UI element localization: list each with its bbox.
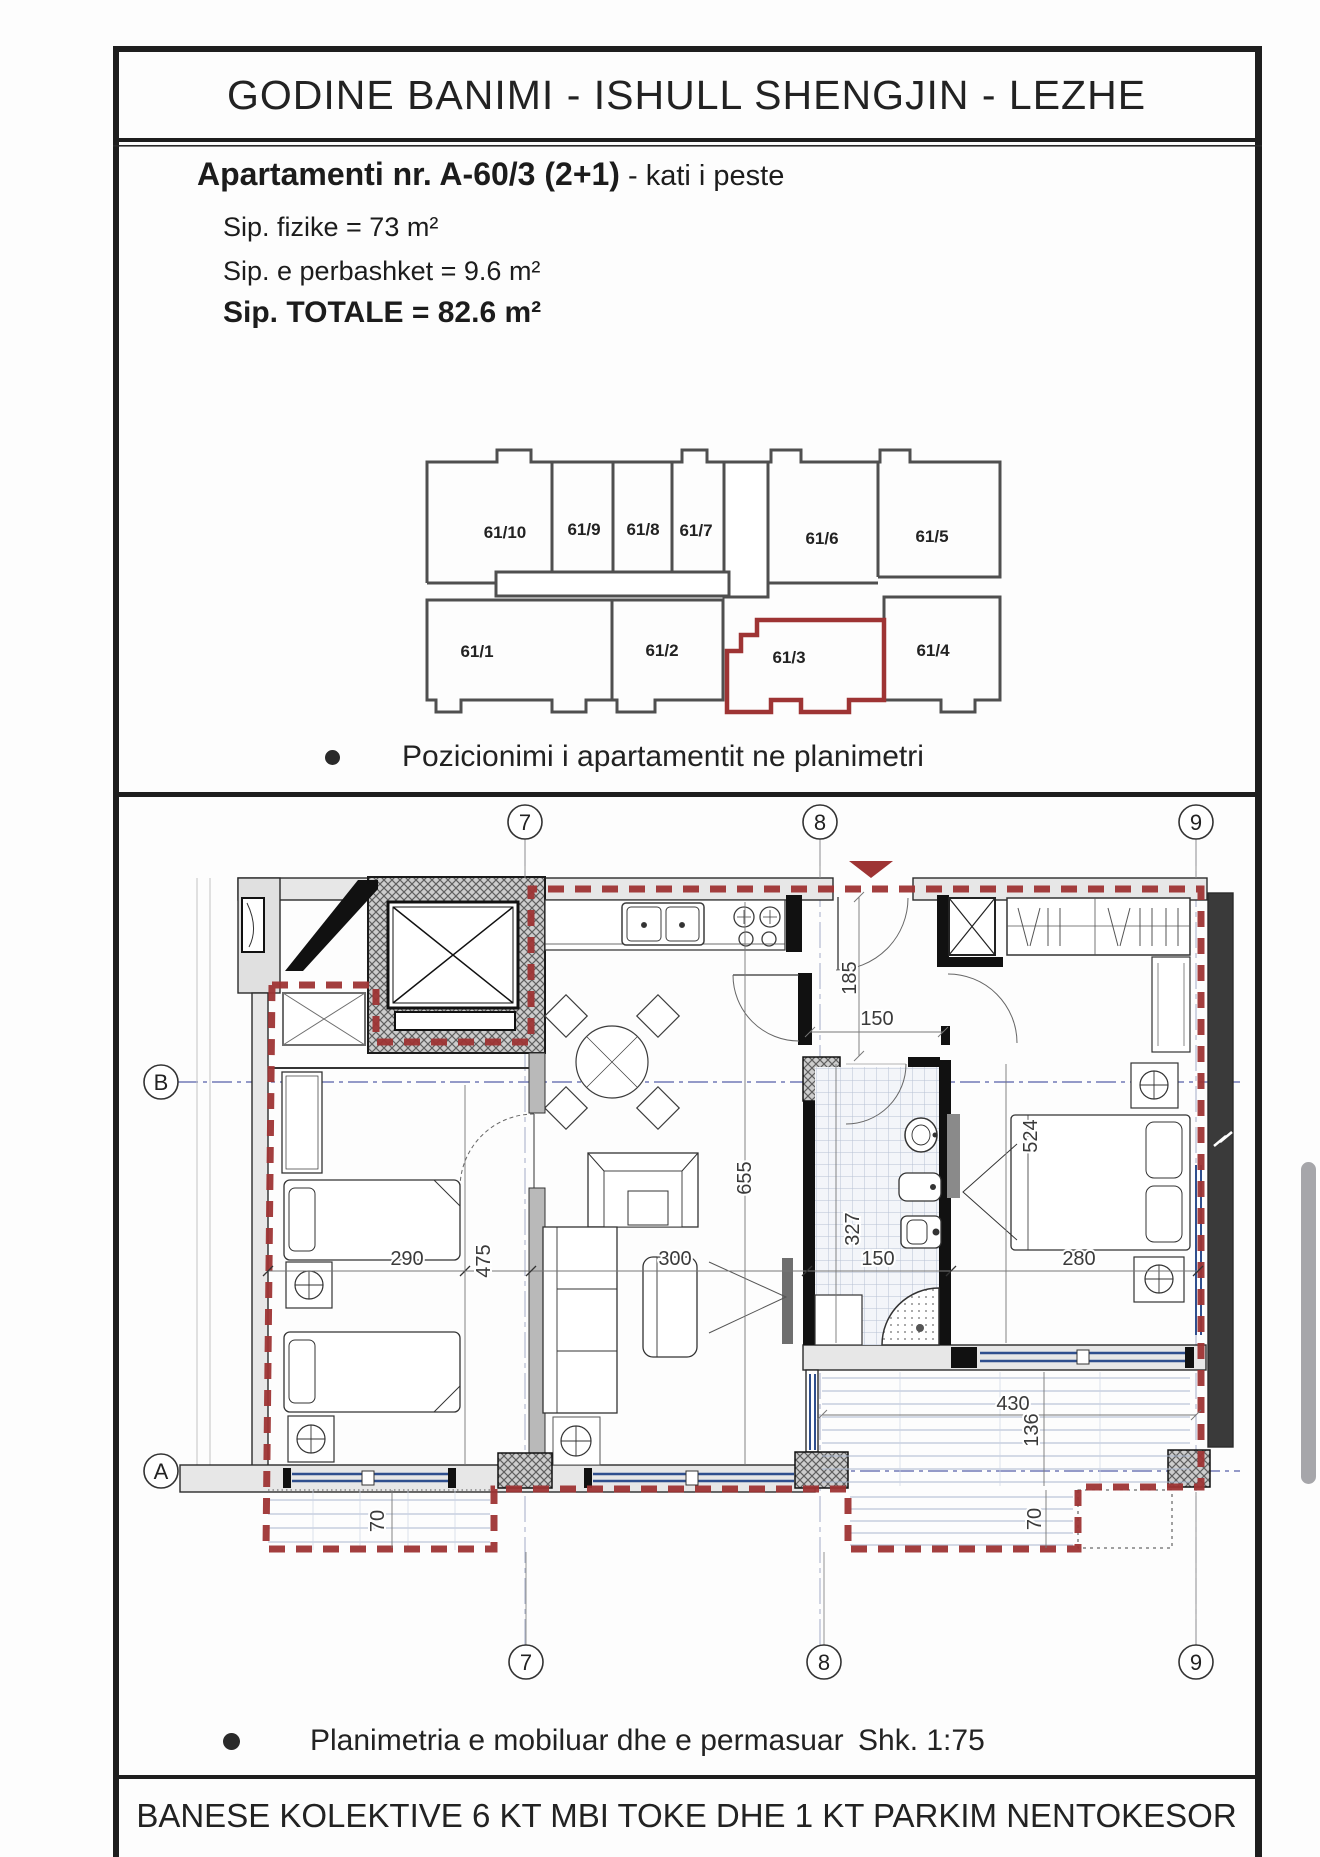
drawing-canvas: 61/10 61/9 61/8 61/7 61/6 61/5 61/1 61/2… <box>0 0 1320 1857</box>
unit-label: 61/5 <box>915 527 948 546</box>
living-door-swing <box>733 975 799 1041</box>
bullet-icon <box>325 750 340 765</box>
unit-label: 61/4 <box>916 641 950 660</box>
bathroom <box>803 1057 960 1345</box>
dim-terrace-width: 430 <box>996 1393 1029 1415</box>
wardrobe <box>1007 898 1190 955</box>
bedroom1-door-swing <box>460 1114 534 1188</box>
kitchen-sink <box>622 903 704 945</box>
living-room <box>543 1153 793 1465</box>
dim-bed1-depth: 475 <box>473 1244 495 1277</box>
dim-balcony-left: 70 <box>367 1510 389 1532</box>
grid-bubble-8: 8 <box>814 810 826 835</box>
dim-living-width: 300 <box>658 1248 691 1270</box>
grid-bubble-B: B <box>154 1070 169 1095</box>
dining-set <box>545 995 679 1129</box>
dim-living-depth: 655 <box>734 1161 756 1194</box>
grid-bubble-8-bottom: 8 <box>818 1650 830 1675</box>
dim-bath-depth: 327 <box>842 1212 864 1245</box>
bedroom1 <box>282 1072 460 1462</box>
grid-bubble-A: A <box>154 1459 169 1484</box>
plan-scale: Shk. 1:75 <box>858 1724 985 1758</box>
sheet-footer: BANESE KOLEKTIVE 6 KT MBI TOKE DHE 1 KT … <box>115 1797 1258 1835</box>
scrollbar-thumb[interactable] <box>1301 1162 1316 1484</box>
dim-door-width: 150 <box>860 1008 893 1030</box>
bath-sink <box>905 1118 937 1152</box>
dim-balcony-right: 70 <box>1024 1508 1046 1530</box>
area-common: Sip. e perbashket = 9.6 m² <box>223 256 540 287</box>
grid-bubble-7: 7 <box>519 810 531 835</box>
unit-label: 61/6 <box>805 529 838 548</box>
position-diagram: 61/10 61/9 61/8 61/7 61/6 61/5 61/1 61/2… <box>427 450 1000 712</box>
dim-bed2-depth: 524 <box>1020 1119 1042 1152</box>
grid-bubble-9: 9 <box>1190 810 1202 835</box>
kitchen <box>545 895 802 952</box>
position-caption: Pozicionimi i apartamentit ne planimetri <box>402 740 924 774</box>
area-total: Sip. TOTALE = 82.6 m² <box>223 296 541 330</box>
entry-arrow <box>849 861 893 878</box>
entry-door-swing <box>836 898 908 970</box>
sofa <box>543 1227 617 1413</box>
area-physical: Sip. fizike = 73 m² <box>223 212 438 243</box>
balcony-projection <box>1078 1490 1172 1548</box>
unit-label: 61/2 <box>645 641 678 660</box>
unit-label: 61/8 <box>626 520 659 539</box>
dim-terrace-depth: 136 <box>1021 1413 1043 1446</box>
unit-label: 61/7 <box>679 521 712 540</box>
armchair <box>643 1257 697 1357</box>
unit-label-highlighted: 61/3 <box>772 648 805 667</box>
bedroom-door-swing <box>948 974 1017 1043</box>
bullet-icon <box>223 1733 240 1750</box>
dim-bath-width: 150 <box>861 1248 894 1270</box>
dim-hall-depth: 185 <box>839 961 861 994</box>
unit-label: 61/10 <box>484 523 527 542</box>
unit-label: 61/9 <box>567 520 600 539</box>
bedroom-tv-panel <box>947 1114 960 1198</box>
floor-plan: 185 150 655 327 290 475 300 150 280 524 … <box>144 805 1240 1679</box>
shaft-and-wardrobe <box>937 895 1190 1052</box>
apartment-heading: Apartamenti nr. A-60/3 (2+1) - kati i pe… <box>197 156 784 193</box>
dim-bed1-width: 290 <box>390 1248 423 1270</box>
grid-bubble-7-bottom: 7 <box>520 1650 532 1675</box>
plan-caption: Planimetria e mobiluar dhe e permasuar <box>310 1724 844 1758</box>
unit-label: 61/1 <box>460 642 493 661</box>
plan-sheet: 61/10 61/9 61/8 61/7 61/6 61/5 61/1 61/2… <box>0 0 1320 1857</box>
apartment-number: Apartamenti nr. A-60/3 (2+1) <box>197 156 620 192</box>
apartment-floor: - kati i peste <box>620 160 784 192</box>
dim-bed2-width: 280 <box>1062 1248 1095 1270</box>
grid-bubble-9-bottom: 9 <box>1190 1650 1202 1675</box>
side-table <box>628 1191 668 1225</box>
washing-machine <box>815 1295 862 1345</box>
sheet-title: GODINE BANIMI - ISHULL SHENGJIN - LEZHE <box>115 72 1258 119</box>
